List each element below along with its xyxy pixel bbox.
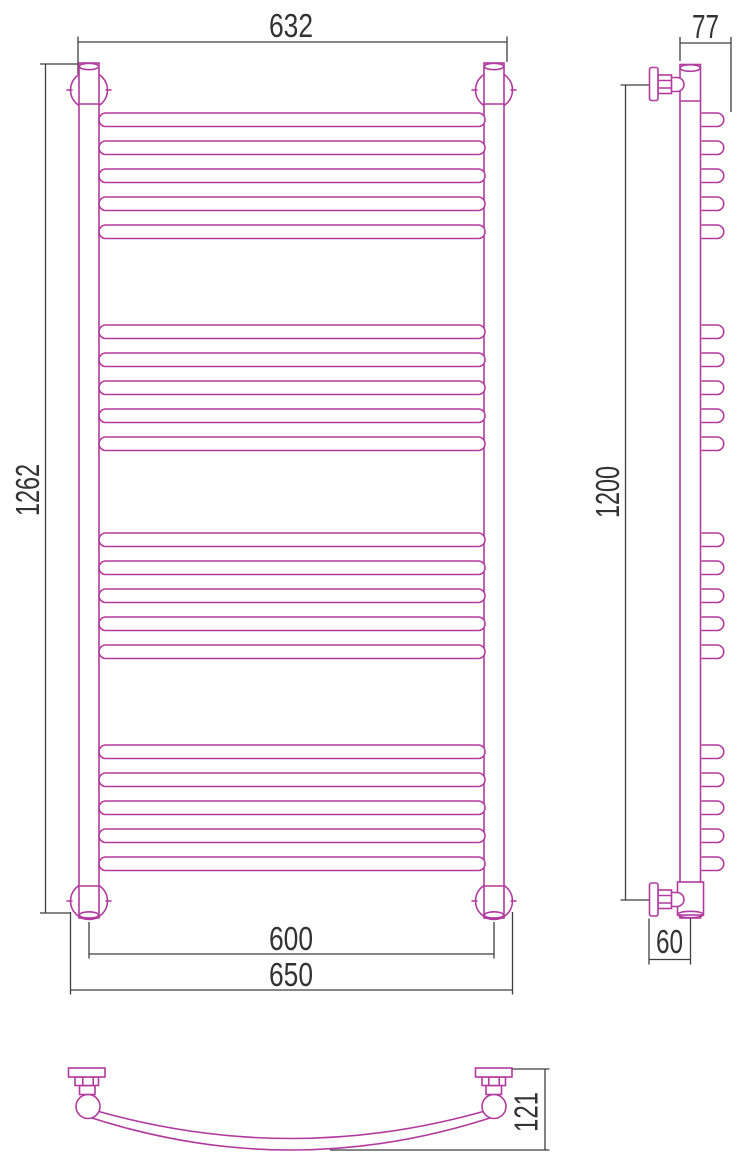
towel-bar-end-stub: [702, 113, 724, 127]
left-rail-tube: [79, 63, 99, 918]
top-view-bracket-left: [69, 1068, 106, 1119]
bracket-flange: [650, 68, 659, 101]
towel-bar-end-stub: [702, 589, 724, 603]
towel-bar: [99, 589, 485, 603]
dim-label-depth: 77: [692, 8, 719, 45]
towel-bars: [99, 113, 485, 871]
towel-bar-end-stub: [702, 829, 724, 843]
bracket-connector: [672, 893, 684, 907]
towel-bar: [99, 381, 485, 395]
towel-bar-end-stub: [702, 437, 724, 451]
bracket-flange: [650, 883, 659, 916]
towel-bar-end-stub: [702, 645, 724, 659]
bracket-nut: [658, 75, 672, 94]
towel-bar-end-stub: [702, 353, 724, 367]
towel-bar: [99, 773, 485, 787]
towel-bar-end-stub: [702, 773, 724, 787]
bracket-nut: [482, 1077, 506, 1086]
side-wall-bracket-top: [650, 68, 685, 101]
towel-bar-end-stub: [702, 381, 724, 395]
towel-bar: [99, 437, 485, 451]
towel-bar: [99, 645, 485, 659]
towel-bar-end-stub: [702, 561, 724, 575]
drawing-canvas: 632 1262 600 650: [0, 0, 750, 1171]
towel-bar-end-stub: [702, 857, 724, 871]
bracket-flange: [69, 1068, 106, 1077]
bracket-neck: [486, 1086, 502, 1095]
towel-bar: [99, 113, 485, 127]
side-tube: [680, 65, 701, 919]
towel-bar: [99, 857, 485, 871]
towel-bar: [99, 353, 485, 367]
tube-section-circle: [76, 1095, 100, 1119]
dim-side-bottom-offset: 60: [649, 919, 691, 965]
towel-bar: [99, 533, 485, 547]
towel-bar: [99, 409, 485, 423]
towel-bar-end-stub: [702, 533, 724, 547]
bracket-flange: [476, 1068, 513, 1077]
right-rail-tube: [484, 63, 504, 918]
towel-bar: [99, 225, 485, 239]
dim-label-bow-depth: 121: [508, 1092, 545, 1132]
towel-bar: [99, 197, 485, 211]
towel-bar: [99, 801, 485, 815]
front-view: 632 1262 600 650: [9, 7, 516, 995]
towel-bar-end-stub: [702, 801, 724, 815]
dim-side-mount-height: 1200: [589, 85, 653, 900]
towel-bar: [99, 169, 485, 183]
towel-bar: [99, 829, 485, 843]
dim-label-bottom-offset: 60: [656, 923, 683, 960]
tube-section-circle: [482, 1095, 506, 1119]
curved-bar-outer-arc: [80, 1114, 502, 1150]
bracket-neck: [80, 1086, 96, 1095]
towel-bar-end-stub: [702, 617, 724, 631]
dim-label-overall-width: 632: [269, 7, 313, 44]
bracket-nut: [75, 1077, 99, 1086]
towel-bar: [99, 325, 485, 339]
towel-bar-end-stub: [702, 141, 724, 155]
dim-front-rail-spacing: 600: [89, 920, 494, 959]
towel-bar-end-stub: [702, 745, 724, 759]
rail-caps: [79, 63, 504, 918]
towel-bar-end-stub: [702, 225, 724, 239]
towel-bar-end-stub: [702, 409, 724, 423]
towel-bar-end-stub: [702, 325, 724, 339]
dim-label-mount-width: 650: [269, 956, 313, 993]
dim-label-mount-height: 1200: [589, 466, 626, 518]
towel-bar: [99, 617, 485, 631]
towel-bar: [99, 561, 485, 575]
dim-top-bow-depth: 121: [330, 1069, 550, 1150]
dim-front-overall-width: 632: [78, 7, 507, 74]
towel-bar: [99, 745, 485, 759]
side-bar-stubs: [702, 113, 724, 871]
bracket-connector: [672, 78, 685, 92]
side-view: 77 1200 60: [589, 8, 731, 965]
technical-drawing: 632 1262 600 650: [0, 0, 750, 1171]
bracket-nut: [658, 890, 672, 909]
dim-label-rail-spacing: 600: [269, 920, 313, 957]
dim-label-overall-height: 1262: [9, 464, 46, 516]
towel-bar-end-stub: [702, 169, 724, 183]
towel-bar-end-stub: [702, 197, 724, 211]
dim-front-overall-height: 1262: [9, 64, 87, 913]
top-down-view: 121: [69, 1068, 550, 1150]
towel-bar: [99, 141, 485, 155]
